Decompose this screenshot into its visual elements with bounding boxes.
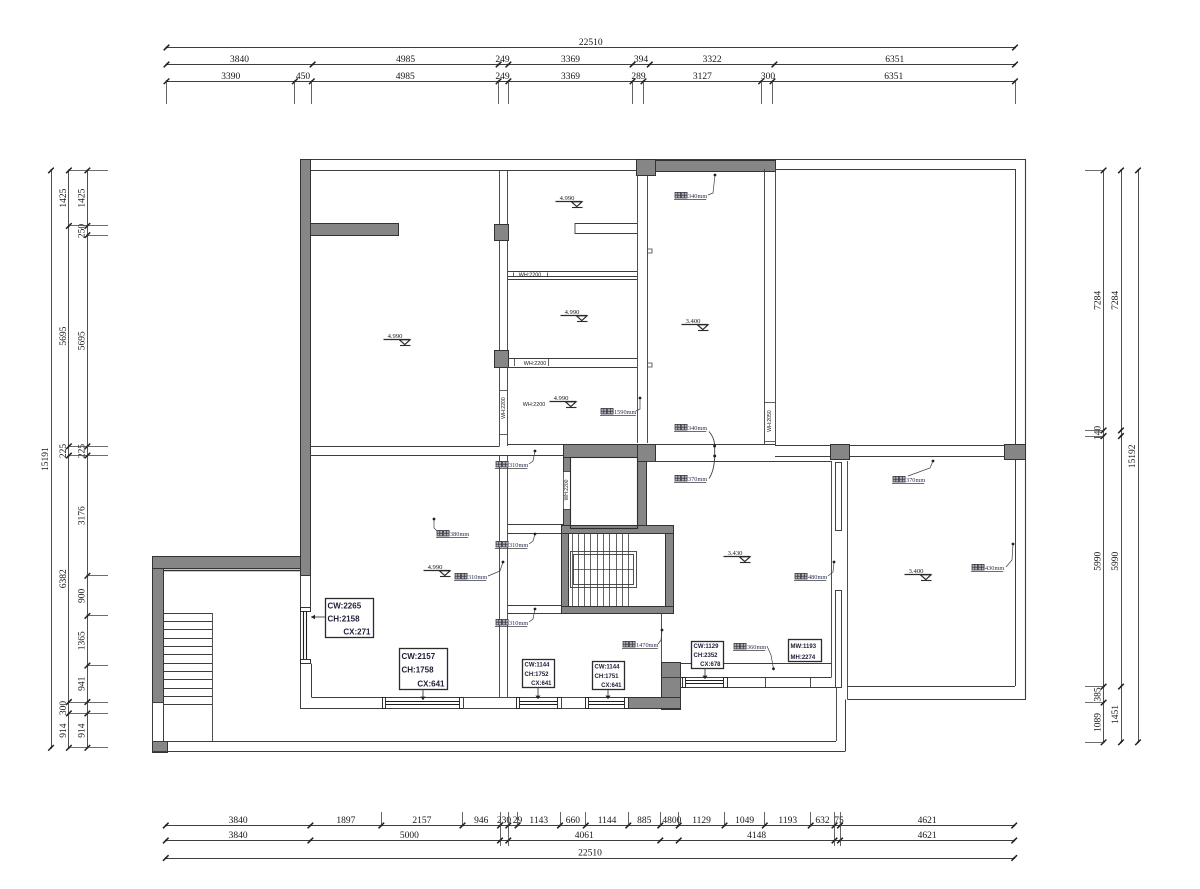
svg-text:225: 225 (59, 444, 69, 459)
svg-text:2157: 2157 (412, 816, 431, 826)
svg-text:4985: 4985 (396, 55, 415, 65)
svg-text:300: 300 (59, 701, 69, 716)
svg-text:3369: 3369 (561, 55, 580, 65)
svg-text:660: 660 (566, 816, 581, 826)
svg-text:22510: 22510 (579, 38, 603, 48)
svg-text:CW:2157: CW:2157 (402, 652, 436, 661)
svg-text:310mm: 310mm (509, 620, 528, 627)
svg-text:CW:1129: CW:1129 (694, 644, 720, 650)
svg-text:6351: 6351 (884, 72, 903, 82)
svg-text:310mm: 310mm (509, 462, 528, 469)
svg-text:4985: 4985 (396, 72, 415, 82)
svg-text:632: 632 (815, 816, 830, 826)
svg-text:1425: 1425 (77, 188, 87, 207)
svg-text:1193: 1193 (778, 816, 797, 826)
svg-text:3127: 3127 (693, 72, 712, 82)
svg-text:310mm: 310mm (468, 574, 487, 581)
svg-text:CH:1751: CH:1751 (595, 674, 620, 680)
svg-text:CW:2265: CW:2265 (328, 601, 362, 610)
svg-text:CX:641: CX:641 (417, 679, 445, 688)
svg-text:900: 900 (77, 588, 87, 603)
svg-text:CH:1758: CH:1758 (402, 666, 435, 675)
svg-text:3176: 3176 (77, 506, 87, 525)
svg-text:3840: 3840 (229, 831, 248, 841)
svg-text:140: 140 (1094, 426, 1104, 441)
svg-text:300: 300 (761, 72, 776, 82)
svg-text:249: 249 (495, 55, 510, 65)
svg-text:1365: 1365 (77, 631, 87, 650)
svg-text:385: 385 (1094, 687, 1104, 702)
svg-text:230: 230 (497, 816, 512, 826)
svg-text:75: 75 (834, 816, 844, 826)
svg-text:3369: 3369 (561, 72, 580, 82)
svg-text:15192: 15192 (1128, 444, 1138, 468)
svg-text:885: 885 (637, 816, 652, 826)
svg-text:6351: 6351 (885, 55, 904, 65)
svg-text:6382: 6382 (59, 569, 69, 588)
svg-text:22510: 22510 (578, 849, 602, 859)
svg-text:5990: 5990 (1111, 552, 1121, 571)
svg-text:480mm: 480mm (808, 574, 827, 581)
svg-text:MW:1193: MW:1193 (791, 644, 817, 650)
svg-text:WH:2200: WH:2200 (523, 402, 545, 408)
svg-text:WH:2200: WH:2200 (564, 479, 570, 500)
svg-text:3840: 3840 (229, 816, 248, 826)
svg-text:4621: 4621 (918, 816, 937, 826)
svg-text:CH:1752: CH:1752 (525, 672, 550, 678)
svg-text:310mm: 310mm (509, 542, 528, 549)
svg-text:370mm: 370mm (688, 476, 707, 483)
svg-text:WH:2050: WH:2050 (767, 410, 773, 432)
svg-text:946: 946 (474, 816, 489, 826)
svg-text:249: 249 (495, 72, 510, 82)
svg-text:1897: 1897 (336, 816, 355, 826)
svg-text:4621: 4621 (918, 831, 937, 841)
svg-text:CX:641: CX:641 (601, 683, 622, 689)
svg-text:MH:2274: MH:2274 (791, 655, 816, 661)
svg-text:CH:2352: CH:2352 (694, 653, 719, 659)
svg-text:15191: 15191 (41, 447, 51, 471)
svg-text:1129: 1129 (692, 816, 711, 826)
svg-text:360mm: 360mm (747, 644, 766, 651)
svg-text:CX:271: CX:271 (343, 627, 371, 636)
svg-text:1144: 1144 (598, 816, 617, 826)
svg-text:1425: 1425 (59, 188, 69, 207)
svg-text:WH:2200: WH:2200 (524, 361, 546, 367)
svg-text:480: 480 (662, 816, 677, 826)
svg-text:914: 914 (77, 723, 87, 738)
svg-text:CW:1144: CW:1144 (595, 665, 621, 671)
svg-text:5695: 5695 (59, 326, 69, 345)
svg-text:5000: 5000 (400, 831, 419, 841)
svg-text:7284: 7284 (1094, 291, 1104, 310)
svg-text:CW:1144: CW:1144 (525, 663, 551, 669)
svg-text:289: 289 (631, 72, 646, 82)
svg-text:4148: 4148 (747, 831, 766, 841)
svg-text:3322: 3322 (703, 55, 722, 65)
svg-text:430mm: 430mm (985, 565, 1004, 572)
svg-text:1143: 1143 (529, 816, 548, 826)
svg-text:3390: 3390 (221, 72, 240, 82)
svg-text:CH:2158: CH:2158 (328, 614, 361, 623)
svg-text:1089: 1089 (1094, 713, 1104, 732)
svg-text:225: 225 (77, 444, 87, 459)
svg-text:340mm: 340mm (688, 193, 707, 200)
svg-text:1590mm: 1590mm (614, 409, 636, 416)
svg-text:914: 914 (59, 723, 69, 738)
svg-text:WH:2200: WH:2200 (501, 397, 507, 419)
svg-text:450: 450 (296, 72, 311, 82)
svg-text:CX:641: CX:641 (531, 681, 552, 687)
svg-text:3840: 3840 (230, 55, 249, 65)
svg-text:1470mm: 1470mm (636, 642, 658, 649)
svg-text:394: 394 (634, 55, 649, 65)
svg-text:370mm: 370mm (906, 477, 925, 484)
svg-text:1451: 1451 (1111, 705, 1121, 724)
svg-text:WH:2200: WH:2200 (519, 272, 541, 278)
svg-text:7284: 7284 (1111, 291, 1121, 310)
svg-text:5990: 5990 (1094, 552, 1104, 571)
svg-text:380mm: 380mm (450, 531, 469, 538)
svg-text:0: 0 (677, 816, 682, 826)
svg-text:340mm: 340mm (688, 425, 707, 432)
svg-text:4061: 4061 (575, 831, 594, 841)
svg-text:1049: 1049 (735, 816, 754, 826)
svg-text:CX:678: CX:678 (700, 662, 721, 668)
svg-text:5695: 5695 (77, 331, 87, 350)
svg-text:941: 941 (77, 676, 87, 691)
